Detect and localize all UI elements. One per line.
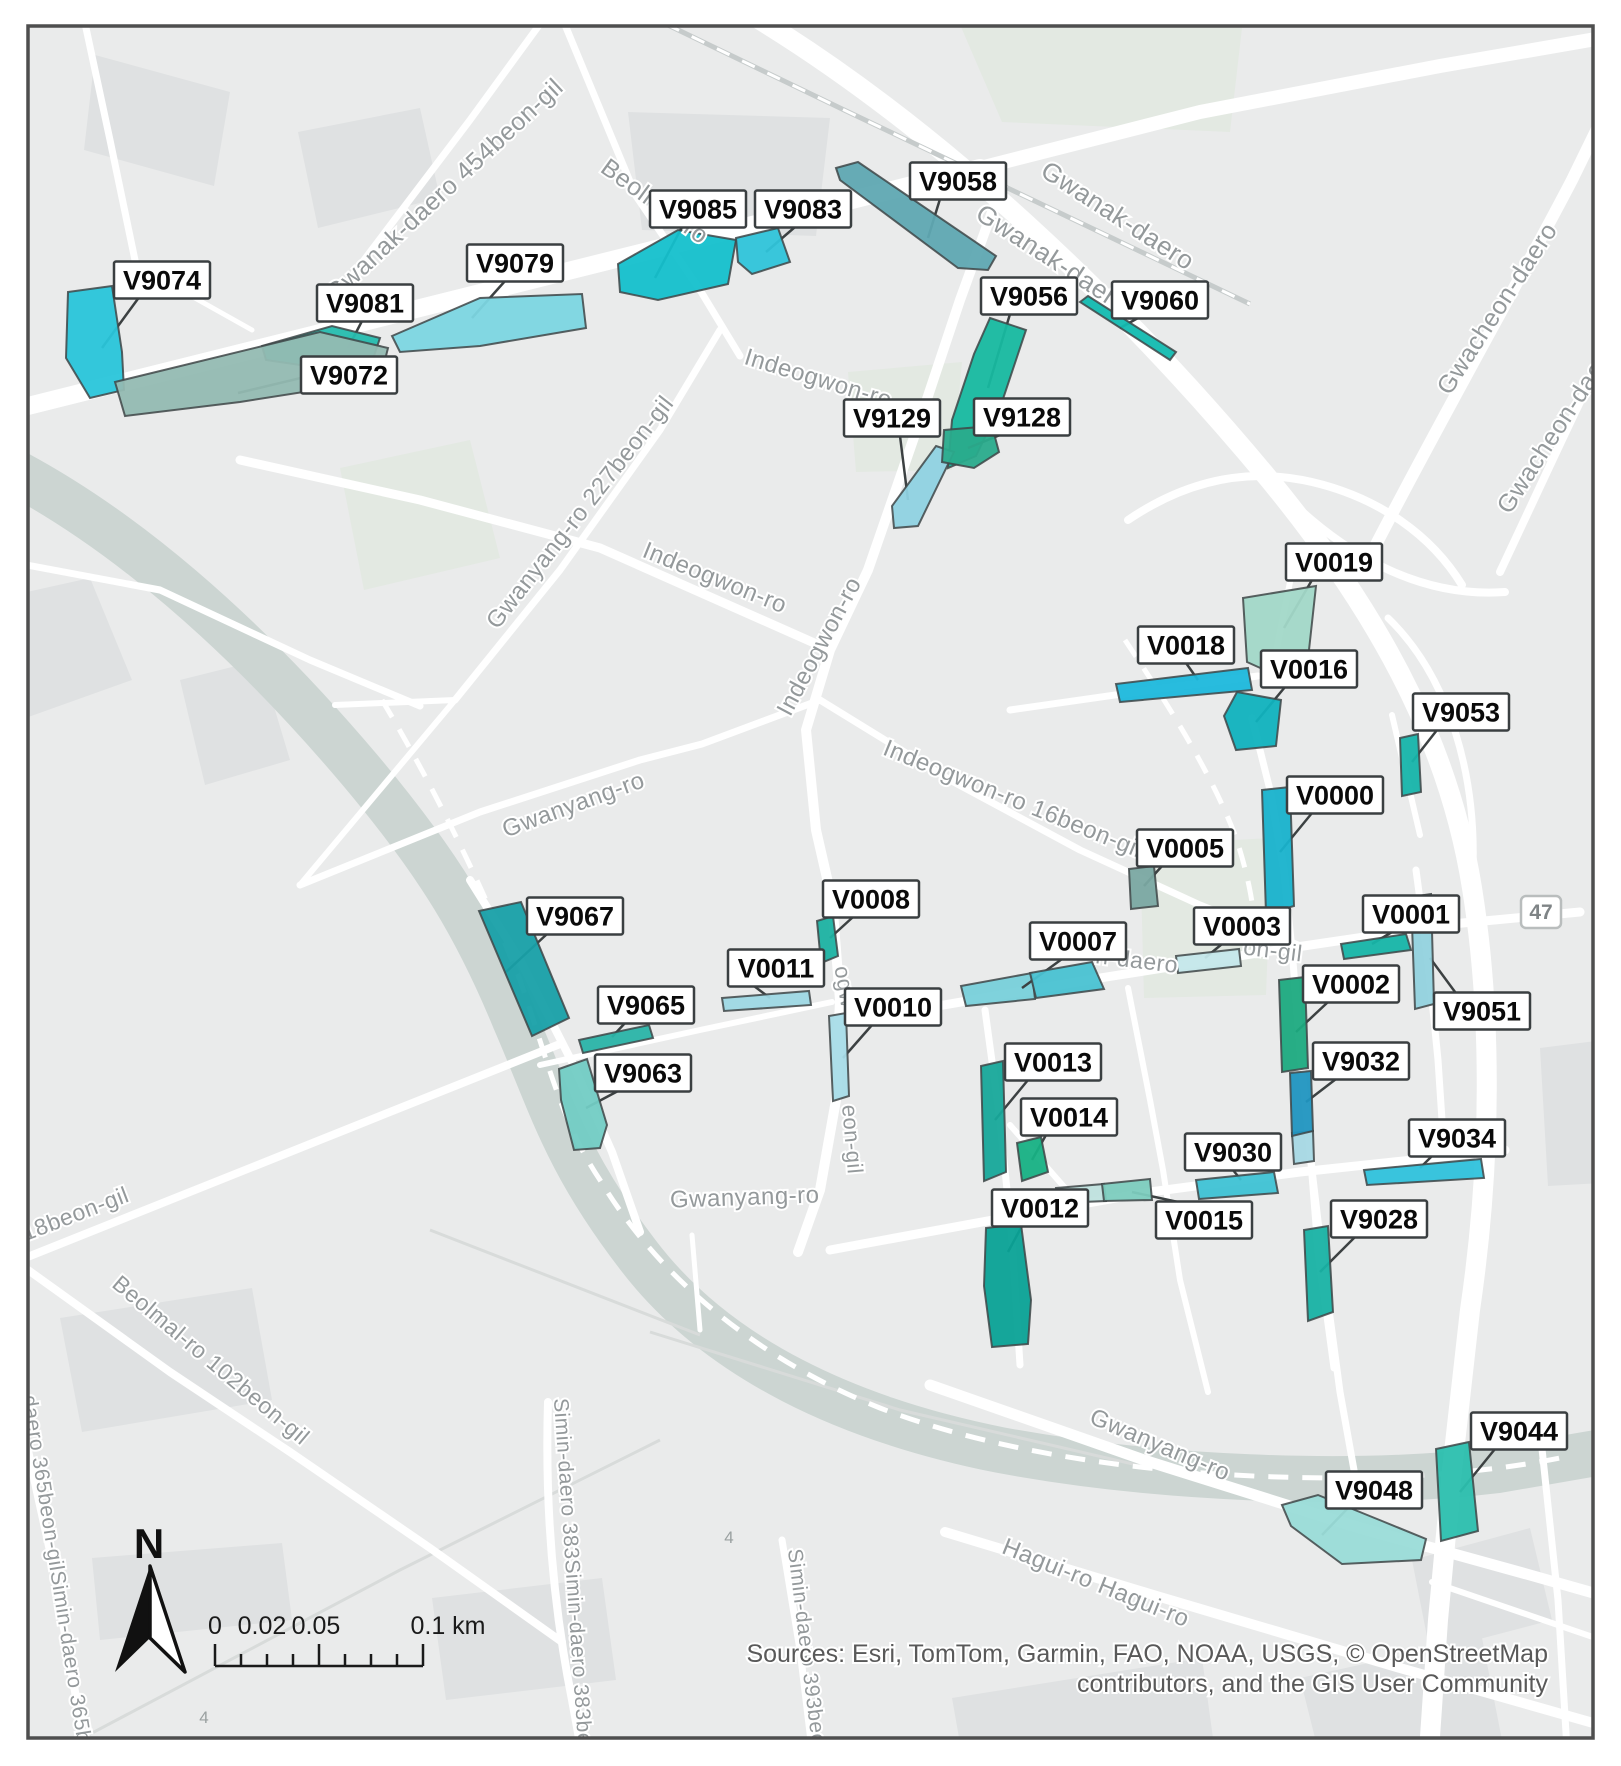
zone-label-text: V9129: [853, 404, 931, 434]
zone-label-text: V0008: [832, 885, 910, 915]
zone-label-text: V0019: [1295, 548, 1373, 578]
zone-polygon-V0015: [1102, 1179, 1152, 1201]
zone-polygon-V0012: [984, 1224, 1031, 1347]
zone-label-text: V9044: [1480, 1417, 1558, 1447]
zone-label-V9028: V9028: [1331, 1201, 1427, 1238]
zone-label-V9081: V9081: [317, 285, 413, 322]
zone-label-text: V9067: [536, 902, 614, 932]
zone-label-V9060: V9060: [1112, 282, 1208, 319]
zone-label-text: V9060: [1121, 286, 1199, 316]
zone-label-V0003: V0003: [1194, 908, 1290, 945]
zone-label-V9058: V9058: [910, 163, 1006, 200]
zone-label-text: V9056: [990, 282, 1068, 312]
zone-label-V0015: V0015: [1156, 1202, 1252, 1239]
zone-label-text: V9028: [1340, 1205, 1418, 1235]
zone-label-V9072: V9072: [301, 357, 397, 394]
attribution-line-1: Sources: Esri, TomTom, Garmin, FAO, NOAA…: [746, 1640, 1548, 1668]
zone-label-text: V9032: [1322, 1047, 1400, 1077]
zone-label-text: V0011: [738, 954, 815, 984]
zone-label-text: V9063: [604, 1059, 682, 1089]
zone-label-text: V0005: [1146, 834, 1224, 864]
zone-label-V9085: V9085: [650, 191, 746, 228]
zone-label-text: V9085: [659, 195, 737, 225]
zone-label-V0016: V0016: [1261, 651, 1357, 688]
zone-label-text: V9065: [607, 991, 685, 1021]
street-label: Gwanyang-ro: [670, 1181, 820, 1213]
zone-label-text: V0010: [854, 993, 932, 1023]
zone-label-text: V9081: [326, 289, 404, 319]
zone-label-text: V9048: [1335, 1476, 1413, 1506]
zone-label-text: V9074: [123, 266, 201, 296]
zone-label-V9128: V9128: [974, 399, 1070, 436]
zone-label-text: V9034: [1418, 1124, 1496, 1154]
zone-label-V0001: V0001: [1363, 896, 1459, 933]
zone-label-V9030: V9030: [1185, 1134, 1281, 1171]
route-shield-number: 47: [1529, 901, 1552, 924]
zone-label-text: V0014: [1030, 1103, 1108, 1133]
zone-label-V0010: V0010: [845, 989, 941, 1026]
zone-label-V9079: V9079: [467, 245, 563, 282]
map-page: Gwanak-daero 454beon-gilBeolmal-roGwanak…: [0, 0, 1621, 1766]
scale-label-005: 0.05: [292, 1612, 341, 1640]
scale-label-0: 0: [208, 1612, 222, 1640]
zone-polygon-V9028: [1304, 1226, 1333, 1321]
zone-label-V9056: V9056: [981, 278, 1077, 315]
zone-label-V0014: V0014: [1021, 1099, 1117, 1136]
zone-label-V9067: V9067: [527, 898, 623, 935]
zone-label-text: V0016: [1270, 655, 1348, 685]
zone-label-V9044: V9044: [1471, 1413, 1567, 1450]
zone-label-V9051: V9051: [1434, 993, 1530, 1030]
north-arrow-label: N: [134, 1520, 164, 1567]
zone-label-V0002: V0002: [1303, 966, 1399, 1003]
zone-label-V0019: V0019: [1286, 544, 1382, 581]
zone-label-V9048: V9048: [1326, 1472, 1422, 1509]
zone-label-V9032: V9032: [1313, 1043, 1409, 1080]
zone-label-text: V9072: [310, 361, 388, 391]
zone-label-text: V0007: [1039, 927, 1117, 957]
zone-label-text: V9079: [476, 249, 554, 279]
zone-label-V0018: V0018: [1138, 627, 1234, 664]
zone-polygon-V9032: [1290, 1071, 1313, 1136]
zone-label-V9065: V9065: [598, 987, 694, 1024]
zone-label-text: V0015: [1165, 1206, 1243, 1236]
zone-label-V0008: V0008: [823, 881, 919, 918]
zone-label-V0012: V0012: [992, 1190, 1088, 1227]
zone-polygon-V0013: [981, 1061, 1006, 1181]
zone-label-text: V0002: [1312, 970, 1390, 1000]
zone-label-text: V0018: [1147, 631, 1225, 661]
zone-label-text: V9128: [983, 403, 1061, 433]
zone-label-V0005: V0005: [1137, 830, 1233, 867]
zone-label-text: V0003: [1203, 912, 1281, 942]
zone-label-text: V0000: [1296, 781, 1374, 811]
zone-label-V9063: V9063: [595, 1055, 691, 1092]
map-figure: Gwanak-daero 454beon-gilBeolmal-roGwanak…: [0, 0, 1621, 1766]
zone-label-V0007: V0007: [1030, 923, 1126, 960]
zone-label-V0011: V0011: [728, 950, 824, 987]
zone-label-text: V9051: [1443, 997, 1521, 1027]
zone-label-text: V0012: [1001, 1194, 1079, 1224]
zone-polygon-V9053: [1400, 734, 1421, 796]
zone-label-V0013: V0013: [1005, 1044, 1101, 1081]
zone-label-V0000: V0000: [1287, 777, 1383, 814]
zone-label-V9129: V9129: [844, 400, 940, 437]
zone-label-V9053: V9053: [1413, 694, 1509, 731]
zone-label-text: V9030: [1194, 1138, 1272, 1168]
attribution-line-2: contributors, and the GIS User Community: [1077, 1670, 1549, 1698]
zone-label-text: V9053: [1422, 698, 1500, 728]
route-marker: 4: [724, 1528, 733, 1547]
zone-polygon-V0005: [1129, 866, 1158, 909]
zone-label-text: V0013: [1014, 1048, 1092, 1078]
zone-label-V9083: V9083: [755, 191, 851, 228]
route-marker: 4: [199, 1708, 208, 1727]
zone-polygon-V0016: [1224, 692, 1281, 750]
zone-label-text: V9083: [764, 195, 842, 225]
zone-label-text: V9058: [919, 167, 997, 197]
zone-label-V9074: V9074: [114, 262, 210, 299]
zone-label-text: V0001: [1372, 900, 1450, 930]
scale-label-002: 0.02: [238, 1612, 287, 1640]
scale-label-01km: 0.1 km: [410, 1612, 485, 1640]
zone-label-V9034: V9034: [1409, 1120, 1505, 1157]
